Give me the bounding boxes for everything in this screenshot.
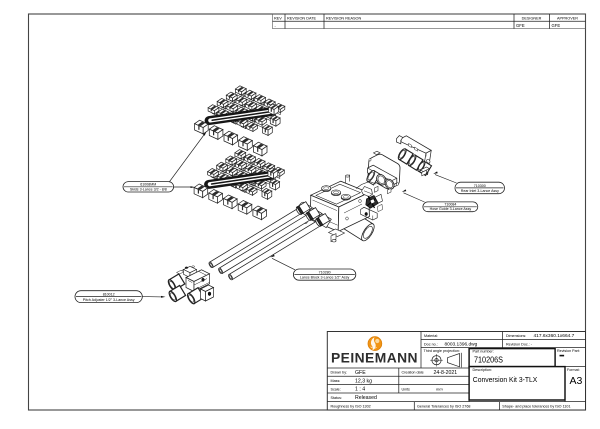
svg-text:8003.1396.dwg: 8003.1396.dwg: [445, 342, 478, 348]
svg-text:Creation date: Creation date: [402, 371, 424, 375]
svg-text:Dimensions:: Dimensions:: [506, 334, 526, 338]
svg-text:REVISION DATE: REVISION DATE: [287, 16, 317, 20]
svg-text:810012: 810012: [103, 292, 115, 296]
svg-text:Lance Block 3-Lance 1/2" Assy: Lance Block 3-Lance 1/2" Assy: [300, 276, 350, 280]
svg-text:Description:: Description:: [473, 368, 492, 372]
svg-text:Rear Inlet 3-Lance Assy: Rear Inlet 3-Lance Assy: [461, 189, 499, 193]
svg-text:710280: 710280: [319, 270, 331, 274]
svg-text:710300: 710300: [474, 184, 486, 188]
svg-text:12,3 kg: 12,3 kg: [355, 378, 372, 384]
svg-text:Drawn by:: Drawn by:: [331, 371, 348, 375]
svg-text:Skids 3-Lance 3/2 - 8/8: Skids 3-Lance 3/2 - 8/8: [130, 188, 167, 192]
svg-text:Third angle projection:: Third angle projection:: [424, 349, 461, 353]
svg-text:Format:: Format:: [567, 368, 580, 372]
svg-text:PEINEMANN: PEINEMANN: [331, 349, 418, 365]
svg-text:Doc no.:: Doc no.:: [424, 342, 438, 346]
svg-text:24-8-2021: 24-8-2021: [434, 370, 458, 376]
svg-text:Material:: Material:: [424, 334, 438, 338]
svg-text:Pitch Adjuster 1/2" 3-Lance As: Pitch Adjuster 1/2" 3-Lance Assy: [83, 298, 135, 302]
svg-text:mm: mm: [436, 386, 443, 391]
svg-text:Scale:: Scale:: [331, 387, 341, 391]
svg-text:Part number:: Part number:: [473, 350, 494, 354]
svg-text:Roughness by ISO 1302: Roughness by ISO 1302: [331, 404, 371, 408]
svg-text:1 : 4: 1 : 4: [355, 387, 365, 393]
svg-text:APPROVER: APPROVER: [557, 16, 578, 20]
svg-text:Released: Released: [355, 395, 377, 401]
svg-text:Conversion Kit 3-TLX: Conversion Kit 3-TLX: [473, 375, 538, 384]
svg-text:710206S: 710206S: [474, 354, 503, 364]
svg-text:417.6x360.1x664.7: 417.6x360.1x664.7: [534, 333, 575, 339]
svg-text:REVISION REASON: REVISION REASON: [326, 16, 361, 20]
svg-text:DESIGNER: DESIGNER: [522, 16, 542, 20]
svg-text:Units: Units: [402, 387, 411, 391]
svg-text:REV: REV: [274, 16, 282, 20]
svg-text:Hose Guide 3-Lance Assy: Hose Guide 3-Lance Assy: [430, 207, 472, 211]
svg-text:GFE: GFE: [552, 23, 561, 28]
svg-text:GFE: GFE: [516, 23, 525, 28]
svg-text:Revision Part:: Revision Part:: [557, 349, 580, 353]
svg-text:Shape- and place tolerances by: Shape- and place tolerances by ISO 1101: [502, 404, 570, 408]
svg-text:General Tolerances by ISO 2768: General Tolerances by ISO 2768: [417, 404, 470, 408]
svg-text:Mass:: Mass:: [331, 379, 341, 383]
svg-text:Revision Doc.: -: Revision Doc.: -: [506, 342, 533, 346]
svg-text:710084: 710084: [444, 203, 456, 207]
svg-text:61008MM: 61008MM: [140, 183, 156, 187]
svg-text:A3: A3: [570, 375, 583, 387]
svg-text:Status:: Status:: [331, 396, 342, 400]
svg-text:GFE: GFE: [355, 370, 366, 376]
